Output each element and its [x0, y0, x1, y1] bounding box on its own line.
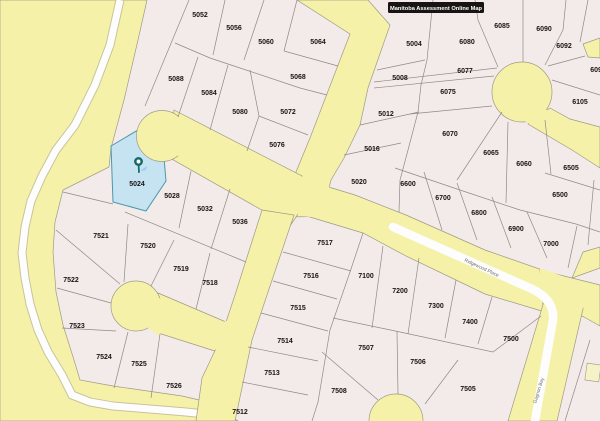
svg-text:6095: 6095 — [590, 67, 600, 74]
svg-text:6085: 6085 — [494, 23, 510, 30]
svg-text:7526: 7526 — [166, 383, 182, 390]
svg-text:7523: 7523 — [69, 323, 85, 330]
svg-text:7512: 7512 — [232, 409, 248, 416]
svg-text:6505: 6505 — [563, 165, 579, 172]
svg-text:6800: 6800 — [471, 210, 487, 217]
svg-text:6090: 6090 — [536, 26, 552, 33]
svg-text:5072: 5072 — [280, 109, 296, 116]
svg-text:6070: 6070 — [442, 131, 458, 138]
svg-text:6900: 6900 — [508, 226, 524, 233]
svg-text:5004: 5004 — [406, 41, 422, 48]
svg-text:6092: 6092 — [556, 43, 572, 50]
svg-text:5036: 5036 — [232, 219, 248, 226]
svg-text:7515: 7515 — [290, 305, 306, 312]
svg-text:7000: 7000 — [543, 241, 559, 248]
svg-text:7517: 7517 — [317, 240, 333, 247]
svg-text:7521: 7521 — [93, 233, 109, 240]
svg-text:5012: 5012 — [378, 111, 394, 118]
svg-text:7506: 7506 — [410, 359, 426, 366]
svg-text:5016: 5016 — [364, 146, 380, 153]
svg-text:7200: 7200 — [392, 288, 408, 295]
svg-text:7508: 7508 — [331, 388, 347, 395]
svg-text:5088: 5088 — [168, 76, 184, 83]
svg-text:5008: 5008 — [392, 75, 408, 82]
svg-text:5056: 5056 — [226, 25, 242, 32]
svg-text:5068: 5068 — [290, 74, 306, 81]
svg-text:6500: 6500 — [552, 192, 568, 199]
svg-text:7524: 7524 — [96, 354, 112, 361]
svg-text:7519: 7519 — [173, 266, 189, 273]
svg-text:5028: 5028 — [164, 193, 180, 200]
svg-text:7513: 7513 — [264, 370, 280, 377]
svg-text:5052: 5052 — [192, 12, 208, 19]
svg-text:6105: 6105 — [572, 99, 588, 106]
svg-text:5024: 5024 — [129, 181, 145, 188]
svg-text:6065: 6065 — [483, 150, 499, 157]
svg-text:5064: 5064 — [310, 39, 326, 46]
svg-text:5076: 5076 — [269, 142, 285, 149]
svg-text:7100: 7100 — [358, 273, 374, 280]
svg-text:7507: 7507 — [358, 345, 374, 352]
svg-text:7300: 7300 — [428, 303, 444, 310]
svg-text:7516: 7516 — [303, 273, 319, 280]
svg-text:7525: 7525 — [131, 361, 147, 368]
svg-text:7522: 7522 — [63, 277, 79, 284]
svg-text:6060: 6060 — [516, 161, 532, 168]
svg-text:7400: 7400 — [462, 319, 478, 326]
svg-text:7514: 7514 — [277, 338, 293, 345]
svg-text:Manitoba Assessment Online Map: Manitoba Assessment Online Map — [390, 6, 483, 12]
svg-text:5084: 5084 — [201, 90, 217, 97]
svg-text:6075: 6075 — [440, 89, 456, 96]
svg-text:6600: 6600 — [400, 181, 416, 188]
svg-text:5080: 5080 — [232, 109, 248, 116]
svg-text:5020: 5020 — [351, 179, 367, 186]
svg-text:7520: 7520 — [140, 243, 156, 250]
svg-text:5060: 5060 — [258, 39, 274, 46]
svg-text:7500: 7500 — [503, 336, 519, 343]
svg-text:7505: 7505 — [460, 386, 476, 393]
svg-text:7518: 7518 — [202, 280, 218, 287]
svg-text:6080: 6080 — [459, 39, 475, 46]
svg-text:6077: 6077 — [457, 68, 473, 75]
svg-text:5032: 5032 — [197, 206, 213, 213]
svg-text:6700: 6700 — [435, 195, 451, 202]
